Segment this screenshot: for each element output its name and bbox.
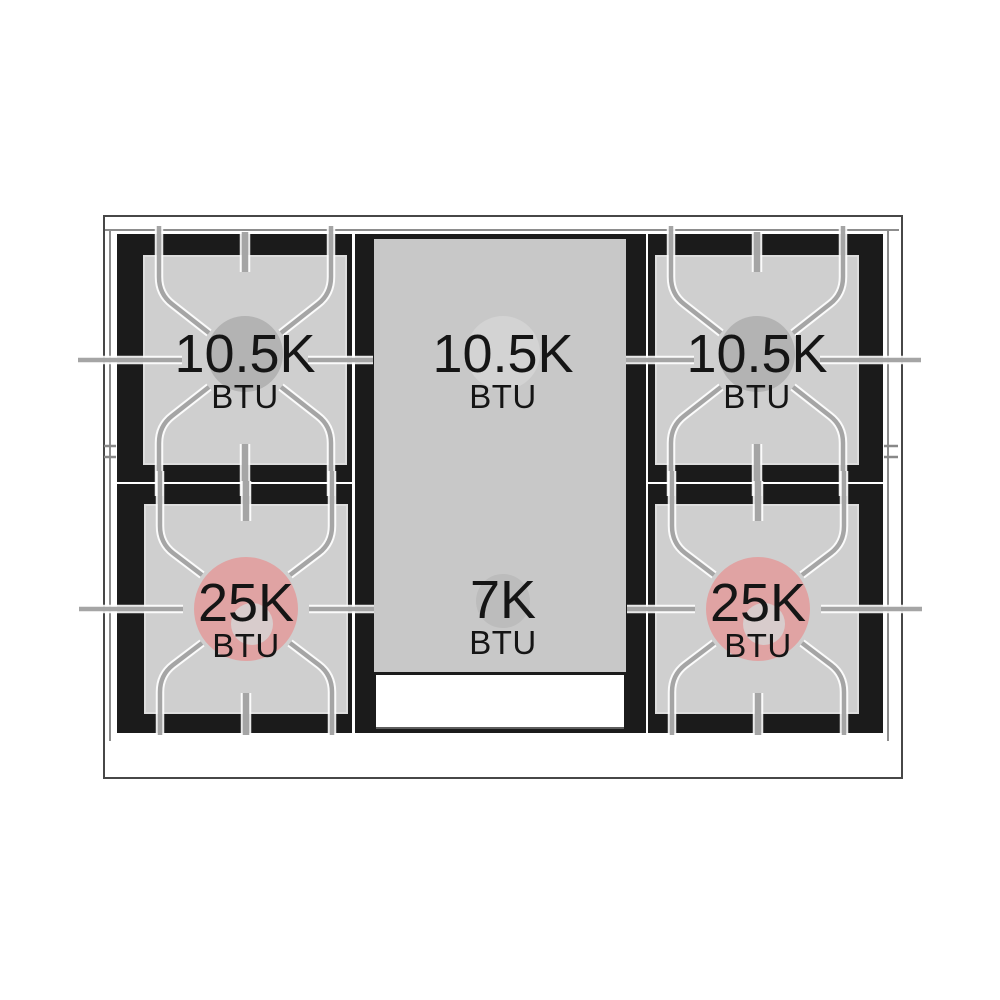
burner-label-top-left: 10.5K BTU xyxy=(125,331,365,412)
btu-unit: BTU xyxy=(126,631,366,661)
btu-value: 25K xyxy=(126,580,366,626)
btu-unit: BTU xyxy=(637,382,877,412)
btu-unit: BTU xyxy=(383,382,623,412)
btu-value: 10.5K xyxy=(125,331,365,377)
right-trim-line xyxy=(887,229,889,741)
burner-label-top-right: 10.5K BTU xyxy=(637,331,877,412)
burner-label-bottom-right: 25K BTU xyxy=(638,580,878,661)
divider-left-horizontal xyxy=(117,482,352,485)
center-lower-white-panel xyxy=(376,675,624,729)
burner-label-bottom-left: 25K BTU xyxy=(126,580,366,661)
btu-value: 10.5K xyxy=(637,331,877,377)
btu-value: 10.5K xyxy=(383,331,623,377)
btu-value: 7K xyxy=(383,577,623,623)
burner-label-bottom-center: 7K BTU xyxy=(383,577,623,658)
burner-label-top-center: 10.5K BTU xyxy=(383,331,623,412)
back-ledge-line xyxy=(105,229,899,231)
btu-unit: BTU xyxy=(383,628,623,658)
btu-value: 25K xyxy=(638,580,878,626)
btu-unit: BTU xyxy=(125,382,365,412)
btu-unit: BTU xyxy=(638,631,878,661)
divider-right-horizontal xyxy=(646,482,883,485)
left-trim-line xyxy=(109,229,111,741)
cooktop-diagram: 10.5K BTU 10.5K BTU 10.5K BTU 25K BTU 7K… xyxy=(0,0,1000,1000)
